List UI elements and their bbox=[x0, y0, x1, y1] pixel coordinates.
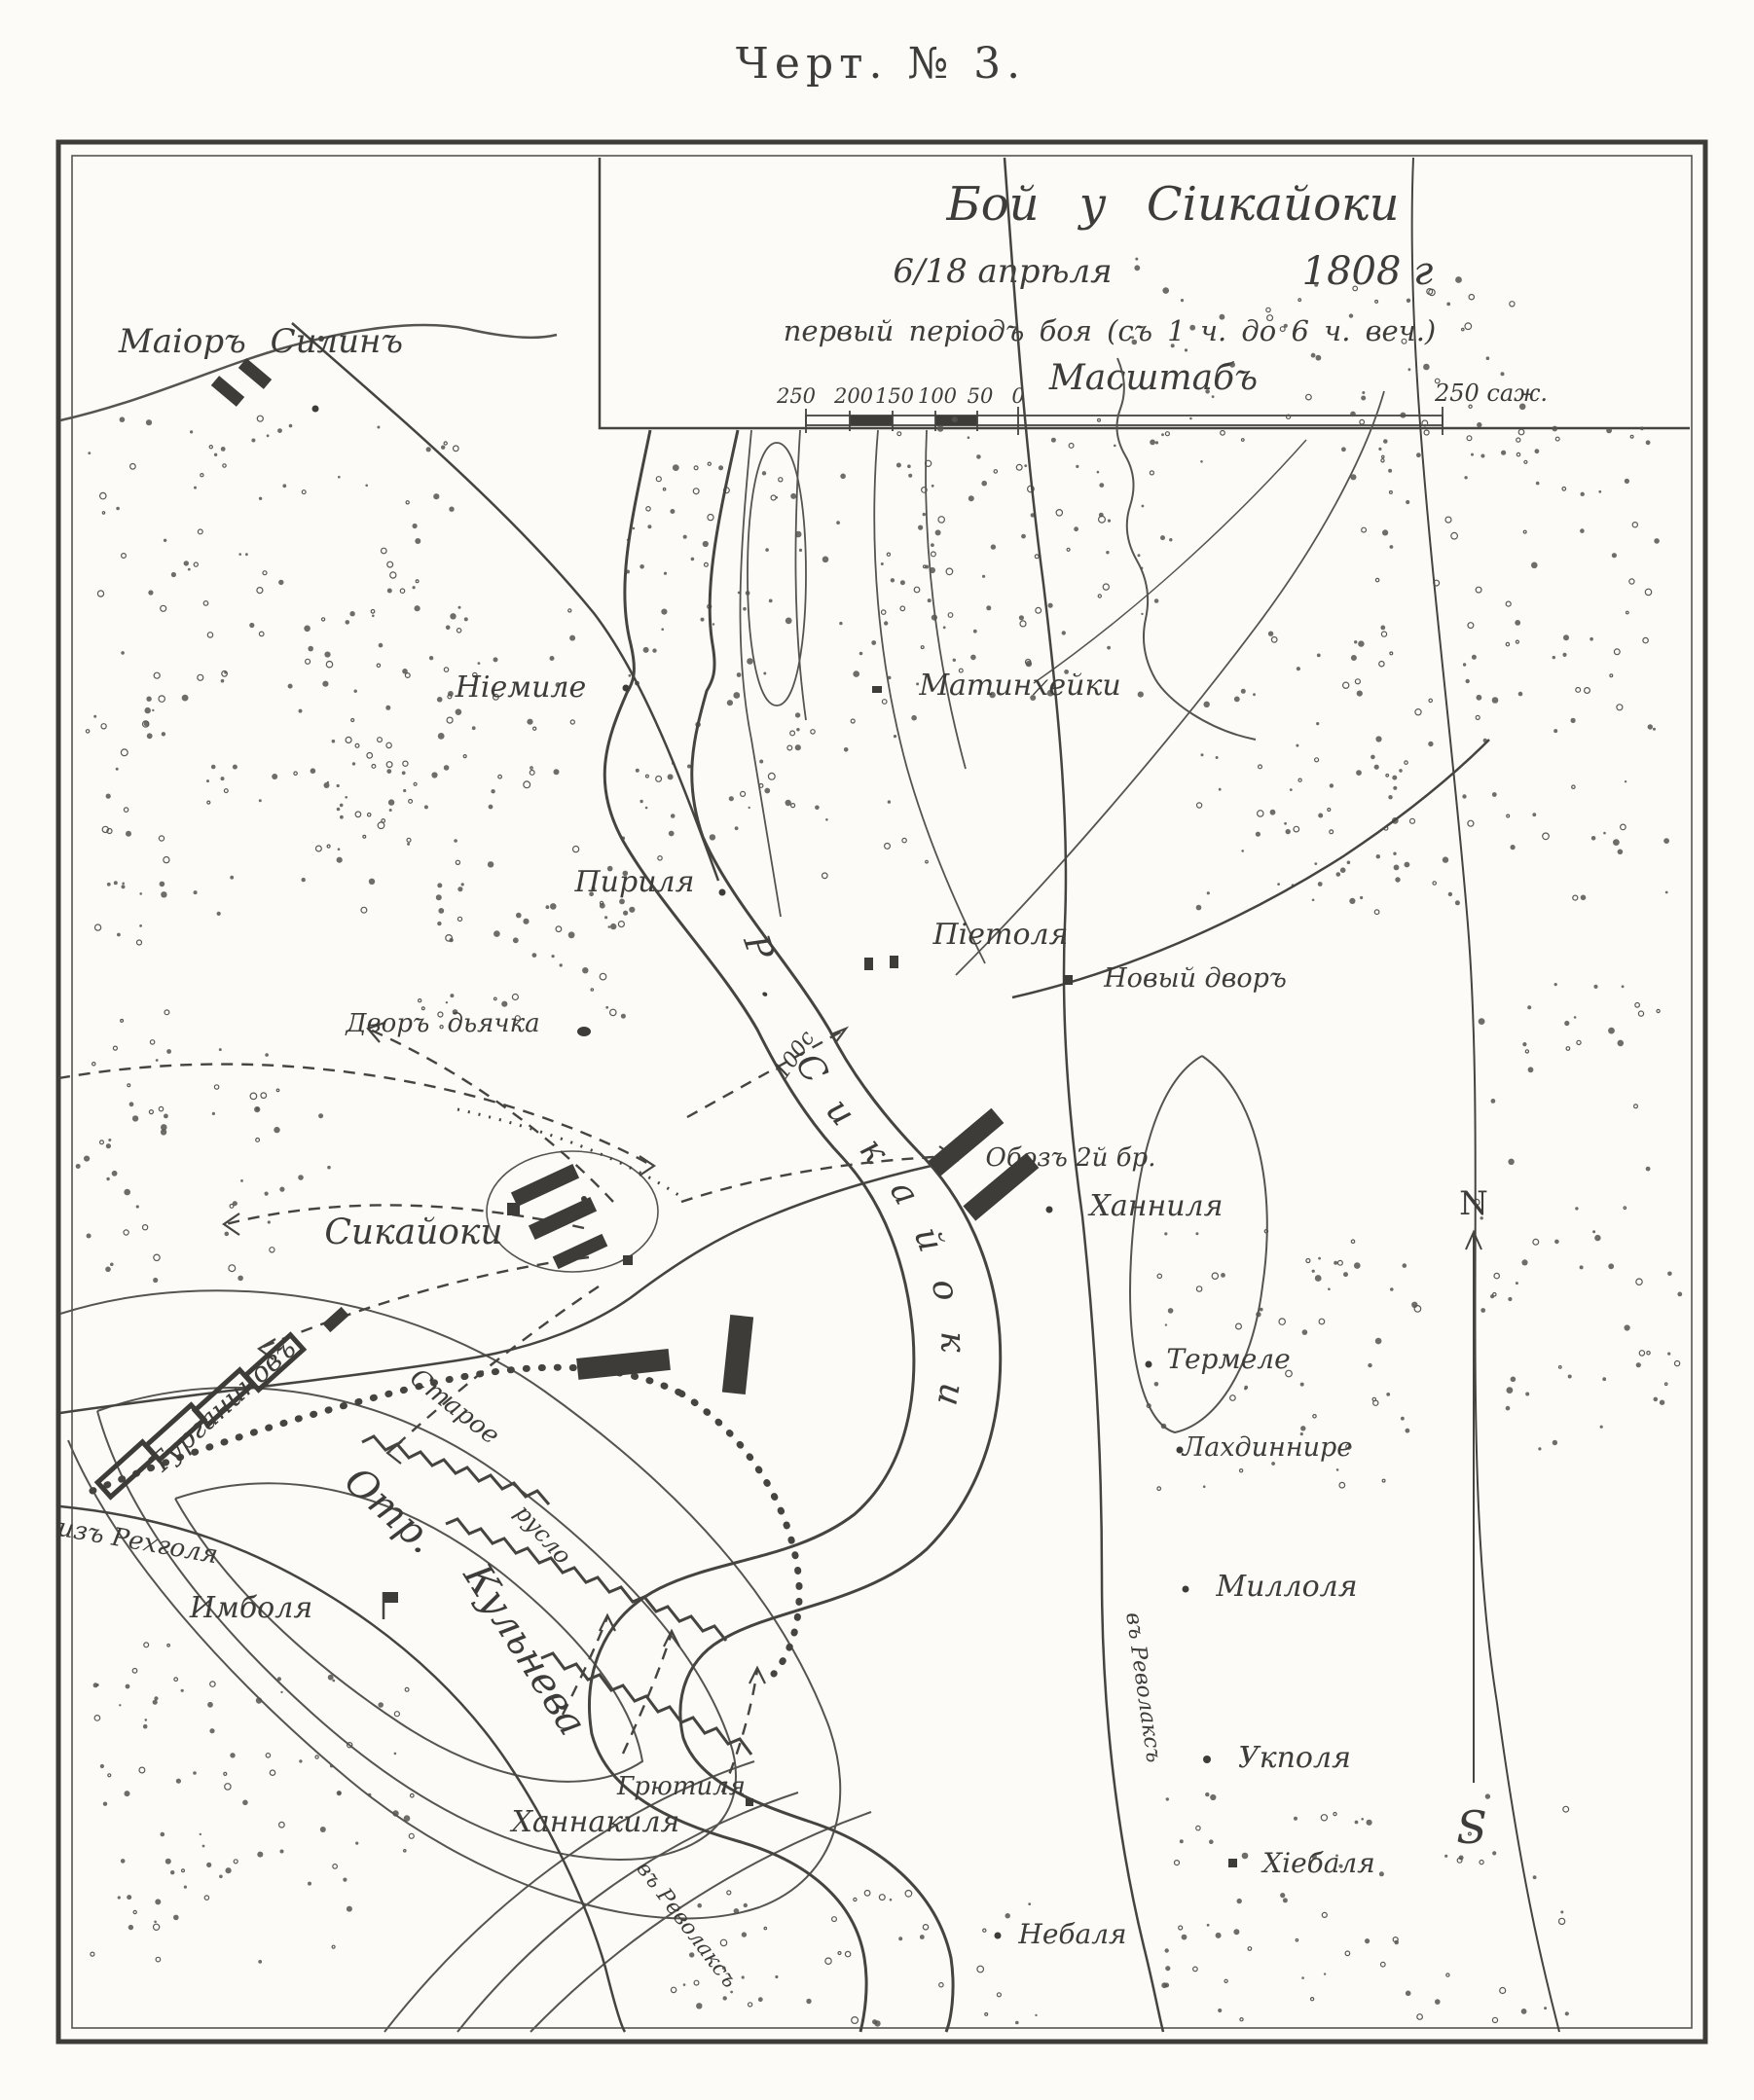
scale-end-label: 250 саж. bbox=[1434, 380, 1548, 407]
place-label-pietolya: Піетоля bbox=[932, 918, 1069, 952]
scale-tick-50: 50 bbox=[968, 384, 994, 408]
place-label-sikajoki-village: Сикайоки bbox=[324, 1213, 502, 1252]
label-old-channel-1: Старое bbox=[404, 1363, 504, 1451]
label-baggage-train: Обозъ 2й бр. bbox=[986, 1143, 1156, 1173]
title-block: Бой у Сіикайоки 6/18 апрѣля 1808 г первы… bbox=[600, 158, 1690, 435]
place-label-hannakilya: Ханнакиля bbox=[510, 1805, 680, 1839]
place-label-termele: Термеле bbox=[1166, 1343, 1290, 1375]
label-old-channel-2: русло bbox=[509, 1499, 576, 1570]
place-label-niemile: Ніемиле bbox=[455, 670, 587, 705]
label-road-from-rehgolya: изъ Рехголя bbox=[55, 1513, 220, 1570]
place-label-millolya: Миллоля bbox=[1215, 1570, 1357, 1604]
scale-heading: Масштабъ bbox=[1048, 358, 1258, 398]
scale-tick-200: 200 bbox=[833, 384, 873, 408]
map-canvas: Черт. № 3. Бой у Сіикайоки 6/18 апрѣля 1… bbox=[0, 0, 1754, 2100]
annotation-labels: Турганиновъ Старое русло Отр. Кульнева и… bbox=[55, 1027, 1166, 1993]
place-label-hannilya: Ханниля bbox=[1087, 1189, 1223, 1223]
scale-tick-100: 100 bbox=[918, 384, 957, 408]
river-label: Р. Сикайоки bbox=[735, 928, 972, 1437]
scale-tick-150: 150 bbox=[875, 384, 914, 408]
place-label-lahdinnire: Лахдиннире bbox=[1181, 1432, 1353, 1463]
compass: N S bbox=[1456, 1184, 1488, 1854]
place-label-hiebalya: Хіебаля bbox=[1261, 1847, 1375, 1879]
compass-north-label: N bbox=[1459, 1184, 1488, 1223]
place-label-nebalya: Небаля bbox=[1017, 1918, 1126, 1950]
label-road-to-revolaks-se: въ Револаксъ bbox=[1120, 1611, 1165, 1764]
label-road-to-revolaks-s: въ Револаксъ bbox=[631, 1857, 742, 1992]
scale-tick-250: 250 bbox=[776, 384, 816, 408]
label-turganinov-column: Турганиновъ bbox=[143, 1332, 303, 1480]
figure-caption: Черт. № 3. bbox=[736, 39, 1026, 89]
label-detachment-otr: Отр. bbox=[336, 1459, 445, 1563]
label-commander-silin: Маіоръ Силинъ bbox=[118, 322, 403, 361]
troop-symbols bbox=[97, 358, 1039, 1619]
map-sheet: Черт. № 3. Бой у Сіикайоки 6/18 апрѣля 1… bbox=[0, 0, 1754, 2100]
place-label-novy-dvor: Новый дворъ bbox=[1103, 963, 1287, 994]
compass-south-label: S bbox=[1456, 1801, 1487, 1854]
place-label-matinheiki: Матинхейки bbox=[918, 669, 1120, 703]
place-label-gryutilya: Грютиля bbox=[616, 1772, 746, 1801]
battle-date: 6/18 апрѣля bbox=[893, 252, 1112, 291]
battle-subtitle: первый періодъ боя (съ 1 ч. до 6 ч. веч.… bbox=[784, 314, 1437, 347]
battle-title: Бой у Сіикайоки bbox=[945, 177, 1399, 232]
place-labels: Маіоръ Силинъ Ніемиле Матинхейки Пириля … bbox=[118, 322, 1375, 1950]
label-detachment-kulnev: Кульнева bbox=[454, 1555, 595, 1744]
place-label-dvor-dyachka: Дворъ дьячка bbox=[345, 1009, 539, 1038]
place-label-ukpolya: Укполя bbox=[1238, 1741, 1351, 1775]
place-label-imbolya: Имболя bbox=[189, 1591, 312, 1625]
place-label-pirilya: Пириля bbox=[574, 865, 695, 899]
